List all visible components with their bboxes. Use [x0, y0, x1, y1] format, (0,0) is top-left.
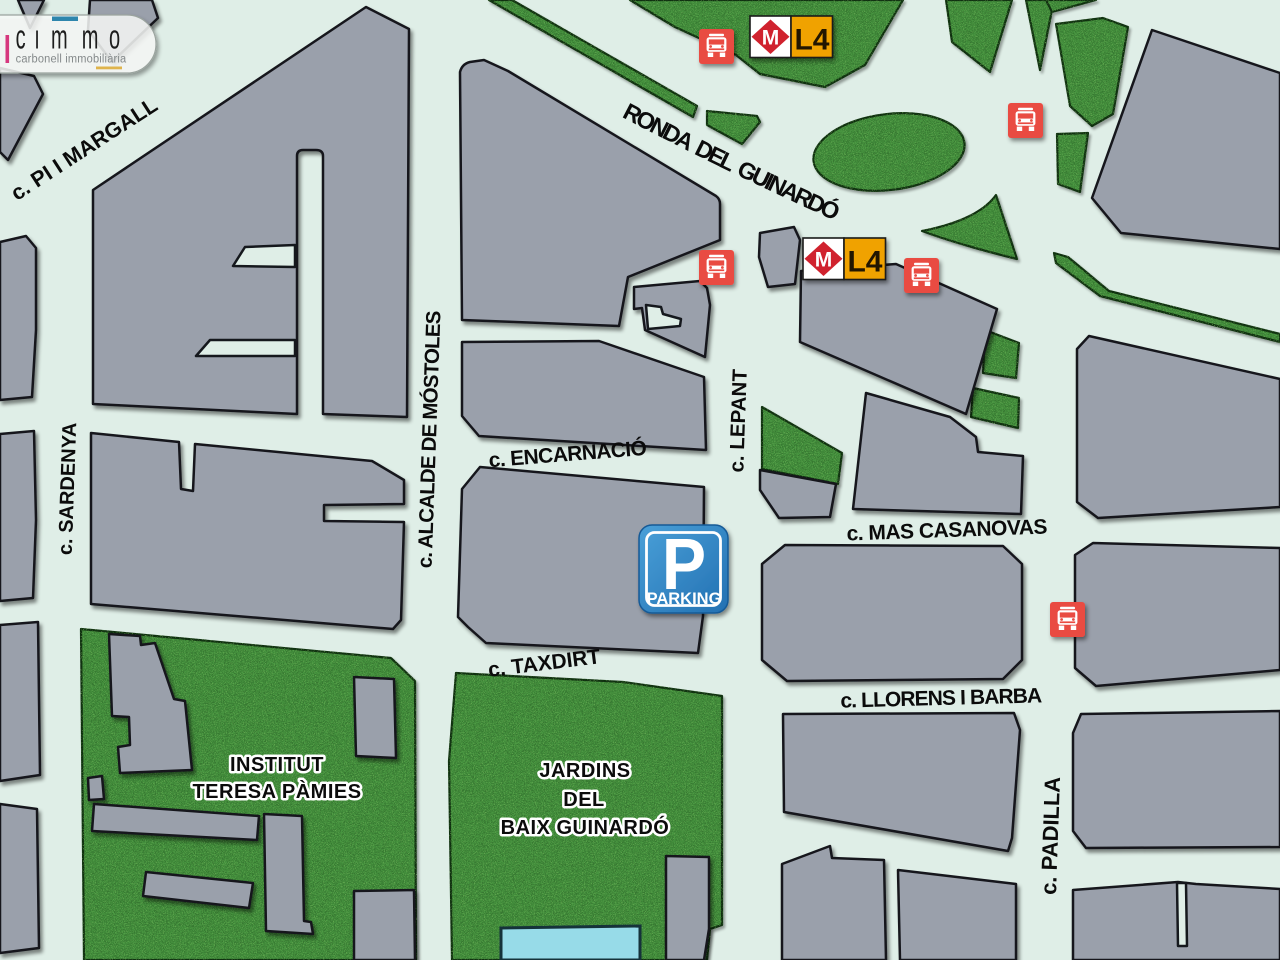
svg-text:c. SARDENYA: c. SARDENYA [55, 422, 82, 555]
svg-text:INSTITUT: INSTITUT [230, 754, 324, 776]
svg-text:DEL: DEL [563, 789, 605, 811]
svg-text:BAIX GUINARDÓ: BAIX GUINARDÓ [501, 815, 670, 839]
svg-text:JARDINS: JARDINS [539, 760, 630, 782]
svg-text:c. LEPANT: c. LEPANT [725, 368, 752, 472]
svg-text:carbonell immobiliària: carbonell immobiliària [16, 53, 127, 65]
svg-text:TERESA PÀMIES: TERESA PÀMIES [192, 780, 361, 803]
svg-text:PARKING: PARKING [647, 590, 722, 608]
svg-text:c. PADILLA: c. PADILLA [1036, 776, 1065, 895]
